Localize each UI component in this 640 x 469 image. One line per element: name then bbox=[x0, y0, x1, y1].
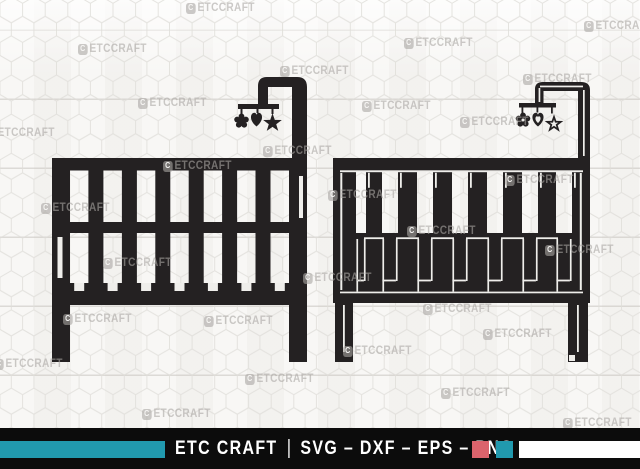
footer-bar: ETC CRAFT | SVG – DXF – EPS – PNG bbox=[0, 428, 640, 469]
crib1-right-leg bbox=[289, 305, 307, 362]
crib2-mobile-hanger bbox=[519, 103, 556, 108]
crib2-string bbox=[537, 108, 539, 113]
star-icon bbox=[263, 113, 282, 131]
crib1-left-post bbox=[52, 158, 70, 305]
white-accent-strip bbox=[519, 441, 640, 458]
product-preview: CETCCRAFTCETCCRAFTCETCCRAFTCETCCRAFTCETC… bbox=[0, 0, 640, 469]
crib-illustrations bbox=[0, 0, 640, 469]
teal-accent-square bbox=[496, 441, 513, 458]
crib2-slats bbox=[366, 171, 556, 233]
crib-with-mobile-solid-icon bbox=[52, 77, 307, 362]
crib1-string bbox=[257, 109, 259, 113]
crib2-mattress-panel bbox=[356, 233, 572, 293]
crib1-left-leg bbox=[52, 305, 70, 362]
crib1-right-post bbox=[289, 158, 307, 305]
red-accent-square bbox=[472, 441, 489, 458]
crib1-mobile-hanger bbox=[238, 104, 279, 109]
teal-accent-bar bbox=[0, 441, 165, 458]
flower-icon bbox=[234, 114, 249, 128]
heart-icon bbox=[251, 113, 262, 127]
crib2-top-rail bbox=[333, 158, 590, 171]
crib2-bottom-rail bbox=[333, 293, 590, 303]
crib1-mobile-arm bbox=[258, 77, 307, 158]
footer-text: ETC CRAFT | SVG – DXF – EPS – PNG bbox=[175, 428, 514, 469]
crib2-mobile-arm bbox=[535, 82, 590, 158]
brand-name: ETC CRAFT bbox=[175, 438, 278, 460]
crib1-top-rail bbox=[52, 158, 307, 171]
crib-with-mobile-outline-icon bbox=[333, 82, 590, 362]
crib2-left-post bbox=[333, 171, 356, 293]
separator: | bbox=[285, 437, 293, 460]
crib2-string bbox=[551, 108, 553, 114]
